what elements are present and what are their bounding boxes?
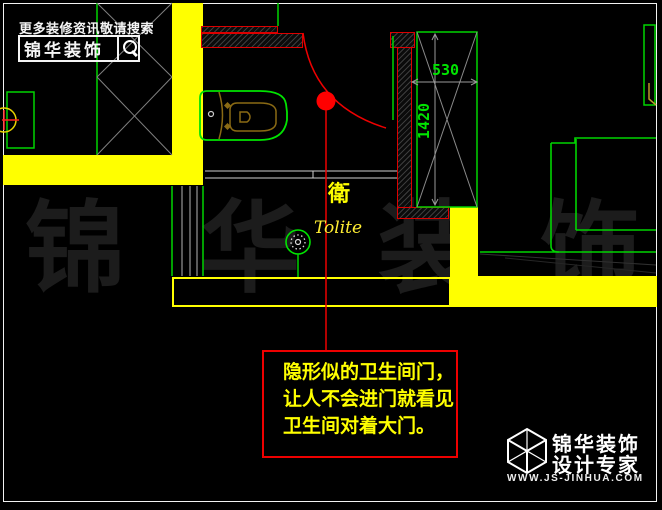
footer-website: WWW.JS-JINHUA.COM bbox=[507, 473, 644, 484]
room-label-cn: 衛 bbox=[328, 176, 350, 208]
annotation-callout: 隐形似的卫生间门， 让人不会进门就看见 卫生间对着大门。 bbox=[262, 350, 458, 458]
promo-brand-label: 锦华装饰 bbox=[20, 36, 104, 61]
search-icon bbox=[123, 40, 139, 56]
dimension-value-top: 530 bbox=[432, 61, 459, 79]
annotation-line: 让人不会进门就看见 bbox=[283, 386, 456, 413]
entry-door-frame bbox=[644, 25, 656, 105]
light-fixture-symbol bbox=[0, 92, 34, 148]
promo-search-box: 锦华装饰 bbox=[18, 35, 140, 62]
pocket-door-tracks bbox=[172, 186, 203, 276]
toilet bbox=[200, 91, 287, 140]
cad-floorplan-screenshot: 锦 华 装 饰 bbox=[0, 0, 662, 510]
footer-logo-cube-icon bbox=[508, 429, 546, 473]
floor-drain bbox=[286, 230, 310, 277]
dimension-value-side: 1420 bbox=[415, 101, 433, 141]
sofa bbox=[480, 138, 656, 252]
room-label-en: Tolite bbox=[314, 218, 362, 238]
promo-divider bbox=[117, 37, 119, 60]
annotation-line: 卫生间对着大门。 bbox=[283, 413, 456, 440]
annotation-line: 隐形似的卫生间门， bbox=[283, 359, 456, 386]
door-marker-dot bbox=[317, 92, 336, 111]
floor-line bbox=[480, 254, 656, 265]
shower-partition-lines bbox=[205, 171, 397, 178]
door-swing bbox=[303, 33, 386, 128]
